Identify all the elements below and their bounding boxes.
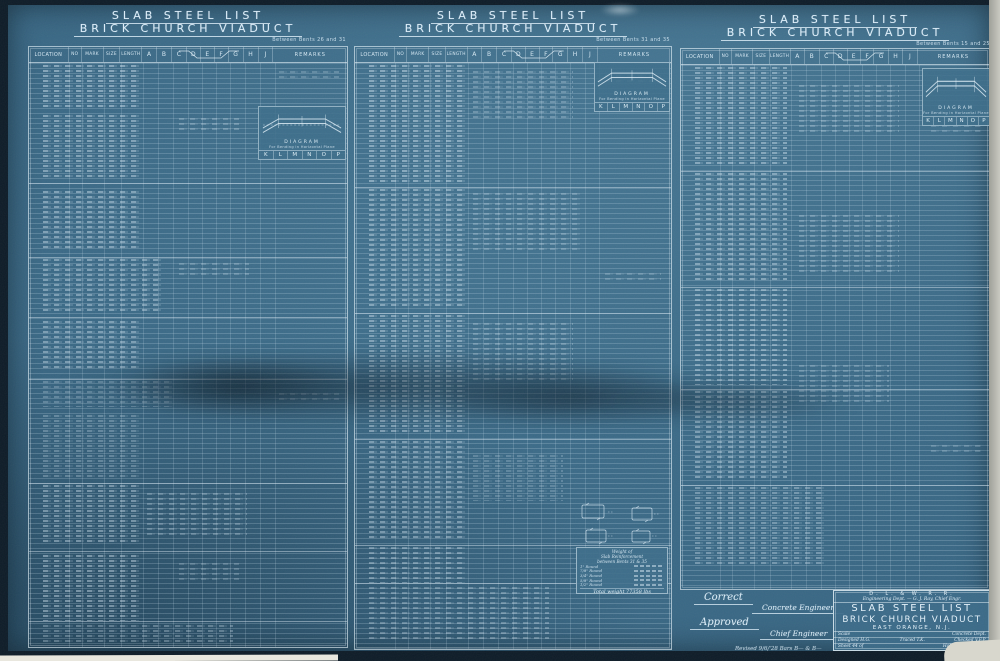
handwritten-entries-texture (369, 65, 465, 183)
column-rule (173, 63, 174, 647)
column-header-length: LENGTH (120, 47, 142, 62)
column-header-h: H (568, 47, 583, 62)
section-rule (29, 257, 347, 258)
panel-middle-subtitle: BRICK CHURCH VIADUCT (373, 22, 653, 35)
column-header-d: D (512, 47, 526, 62)
handwritten-entries-texture (179, 263, 249, 275)
panel-middle-title: SLAB STEEL LIST (403, 9, 623, 22)
dept-label: Concrete Dept. (952, 632, 986, 637)
weight-item-value (634, 579, 664, 581)
panel-left-note: Between Bents 26 and 31 (250, 37, 346, 43)
column-header-j: J (903, 49, 917, 64)
panel-right-subtitle: BRICK CHURCH VIADUCT (695, 26, 975, 39)
handwritten-entries-texture (43, 415, 139, 477)
bend-sketch (259, 107, 345, 140)
panel-middle-note: Between Bents 31 and 35 (590, 37, 670, 43)
column-header-remarks: REMARKS (273, 47, 347, 62)
column-header-location: LOCATION (29, 47, 69, 62)
column-rule (862, 65, 863, 589)
column-header-b: B (805, 49, 819, 64)
column-rule (849, 65, 850, 589)
sheet-title: SLAB STEEL LIST (834, 603, 990, 614)
handwritten-entries-texture (369, 189, 465, 309)
weight-item-list: 1" Round7/8" Round3/4" Round5/8" Round1/… (580, 564, 664, 587)
inset-subcaption: For Bending in Horizontal Plane (923, 111, 989, 115)
column-rule (230, 63, 231, 647)
column-header-mark: MARK (732, 49, 753, 64)
column-rule (202, 63, 203, 647)
section-rule (29, 621, 347, 622)
steel-list-table-right: LOCATIONNOMARKSIZELENGTHABCDEFGHJREMARKS (680, 48, 990, 590)
weight-item-value (634, 565, 664, 567)
handwritten-entries-texture (799, 365, 889, 405)
section-rule (29, 551, 347, 552)
inset-subcaption: For Bending in Horizontal Plane (595, 97, 669, 101)
weight-summary-box: Weight of Slab Reinforcement between Ben… (576, 547, 668, 594)
handwritten-entries-texture (695, 67, 787, 167)
column-rule (905, 65, 906, 589)
stirrup-bend-diagrams (574, 500, 670, 546)
handwritten-entries-texture (931, 125, 981, 133)
scan-edge-bottom-left (0, 655, 338, 661)
inset-letter-row: KLMNOP (595, 102, 669, 111)
column-header-size: SIZE (429, 47, 446, 62)
weight-total: Total weight 77358 lbs (580, 588, 664, 595)
table-header-row: LOCATIONNOMARKSIZELENGTHABCDEFGHJREMARKS (681, 49, 989, 65)
handwritten-entries-texture (279, 393, 339, 401)
column-rule (468, 63, 469, 649)
column-header-no: NO (69, 47, 82, 62)
section-rule (681, 287, 989, 288)
bend-sketch (923, 69, 989, 106)
scale-label: Scale (838, 632, 850, 637)
inset-column-letter: O (317, 151, 332, 159)
column-header-e: E (848, 49, 861, 64)
column-header-e: E (526, 47, 540, 62)
handwritten-entries-texture (473, 455, 563, 501)
inset-column-letter: P (332, 151, 346, 159)
column-header-mark: MARK (82, 47, 104, 62)
revision-note: Revised 9/6/'28 Bars B— & B— (735, 646, 822, 652)
blueprint-scan: SLAB STEEL LIST BRICK CHURCH VIADUCT Bet… (0, 0, 1000, 661)
column-header-a: A (142, 47, 157, 62)
column-header-c: C (172, 47, 187, 62)
column-header-c: C (497, 47, 512, 62)
column-header-f: F (540, 47, 554, 62)
column-header-f: F (861, 49, 874, 64)
inset-column-letter: M (945, 117, 956, 125)
handwritten-entries-texture (473, 71, 573, 121)
section-rule (29, 183, 347, 184)
column-header-remarks: REMARKS (598, 47, 671, 62)
column-header-d: D (187, 47, 201, 62)
handwritten-entries-texture (43, 115, 139, 179)
handwritten-entries-texture (695, 173, 787, 283)
signature-chief-engineer: Chief Engineer (760, 629, 837, 638)
handwritten-entries-texture (43, 485, 139, 543)
section-rule (29, 379, 347, 380)
column-header-j: J (259, 47, 274, 62)
handwritten-entries-texture (369, 547, 465, 583)
table-body (681, 65, 989, 589)
inset-letter-row: KLMNOP (259, 150, 345, 159)
handwritten-entries-texture (179, 118, 239, 132)
column-rule (188, 63, 189, 647)
section-rule (681, 485, 989, 486)
column-header-location: LOCATION (355, 47, 395, 62)
bend-sketch (595, 63, 669, 92)
bending-diagram-inset-right: DIAGRAM For Bending in Horizontal Plane … (922, 68, 990, 126)
handwritten-entries-texture (279, 71, 339, 79)
handwritten-entries-texture (799, 215, 899, 275)
handwritten-entries-texture (695, 487, 825, 567)
inset-column-letter: K (923, 117, 934, 125)
weight-item-row: 1/2" Round (580, 582, 664, 587)
handwritten-entries-texture (43, 191, 139, 251)
inset-column-letter: L (608, 103, 621, 111)
handwritten-entries-texture (147, 493, 247, 537)
section-rule (355, 439, 671, 440)
inset-column-letter: L (934, 117, 945, 125)
handwritten-entries-texture (43, 381, 173, 407)
column-header-size: SIZE (104, 47, 121, 62)
handwritten-entries-texture (369, 315, 465, 435)
weight-item-value (634, 584, 664, 586)
signature-approved-label: Approved (690, 617, 759, 628)
column-header-mark: MARK (407, 47, 429, 62)
inset-column-letter: O (968, 117, 979, 125)
inset-column-letter: N (303, 151, 318, 159)
column-header-j: J (583, 47, 598, 62)
inset-column-letter: P (658, 103, 670, 111)
column-header-b: B (482, 47, 497, 62)
signature-correct-label: Correct (694, 592, 753, 603)
column-header-d: D (834, 49, 847, 64)
inset-subcaption: For Bending in Horizontal Plane (259, 145, 345, 149)
sheet-location: EAST ORANGE, N.J. (834, 625, 990, 632)
column-header-a: A (791, 49, 805, 64)
column-rule (919, 65, 920, 589)
inset-column-letter: M (288, 151, 303, 159)
column-rule (158, 63, 159, 647)
column-header-no: NO (395, 47, 408, 62)
handwritten-entries-texture (695, 391, 787, 481)
inset-column-letter: P (979, 117, 989, 125)
sheet-number: Sheet 44 of (838, 644, 863, 649)
handwritten-entries-texture (473, 193, 583, 253)
column-header-length: LENGTH (446, 47, 468, 62)
section-rule (355, 187, 671, 188)
section-rule (681, 171, 989, 172)
handwritten-entries-texture (369, 587, 549, 641)
column-header-e: E (201, 47, 215, 62)
panel-right-note: Between Bents 15 and 25 (912, 41, 990, 47)
column-header-a: A (468, 47, 483, 62)
column-header-g: G (874, 49, 888, 64)
column-header-location: LOCATION (681, 49, 720, 64)
column-header-g: G (229, 47, 244, 62)
sheet-subtitle: BRICK CHURCH VIADUCT (834, 615, 990, 625)
designed-by: Designed H.G. (838, 638, 870, 643)
handwritten-entries-texture (369, 441, 465, 541)
column-header-h: H (889, 49, 903, 64)
handwritten-entries-texture (179, 563, 239, 583)
handwritten-entries-texture (43, 555, 139, 621)
column-header-f: F (215, 47, 229, 62)
bending-diagram-inset-middle: DIAGRAM For Bending in Horizontal Plane … (594, 62, 670, 112)
column-rule (890, 65, 891, 589)
column-header-no: NO (720, 49, 733, 64)
handwritten-entries-texture (43, 259, 163, 311)
traced-by: Traced T.K. (900, 638, 925, 643)
weight-item-label: 1/2" Round (580, 582, 602, 587)
section-rule (29, 483, 347, 484)
column-header-size: SIZE (753, 49, 769, 64)
column-header-b: B (157, 47, 172, 62)
column-header-g: G (553, 47, 568, 62)
column-rule (835, 65, 836, 589)
panel-left-title: SLAB STEEL LIST (78, 9, 298, 22)
paper-corner-curl (943, 639, 1000, 661)
handwritten-entries-texture (43, 65, 139, 109)
panel-left-subtitle: BRICK CHURCH VIADUCT (48, 22, 328, 35)
handwritten-entries-texture (605, 273, 661, 283)
panel-right-title: SLAB STEEL LIST (725, 13, 945, 26)
inset-letter-row: KLMNOP (923, 116, 989, 125)
column-header-c: C (820, 49, 834, 64)
inset-column-letter: L (274, 151, 289, 159)
table-header-row: LOCATIONNOMARKSIZELENGTHABCDEFGHJREMARKS (29, 47, 347, 63)
inset-column-letter: M (620, 103, 633, 111)
weight-item-value (634, 570, 664, 572)
weight-item-value (634, 575, 664, 577)
column-rule (245, 63, 246, 647)
section-rule (29, 317, 347, 318)
inset-column-letter: K (595, 103, 608, 111)
column-header-length: LENGTH (770, 49, 791, 64)
inset-column-letter: K (259, 151, 274, 159)
column-header-h: H (244, 47, 259, 62)
inset-column-letter: O (645, 103, 658, 111)
handwritten-entries-texture (931, 445, 981, 455)
table-header-row: LOCATIONNOMARKSIZELENGTHABCDEFGHJREMARKS (355, 47, 671, 63)
handwritten-entries-texture (43, 321, 139, 371)
inset-column-letter: N (957, 117, 968, 125)
signature-concrete-engineer: Concrete Engineer (752, 603, 844, 612)
column-header-remarks: REMARKS (918, 49, 989, 64)
bending-diagram-inset-left: DIAGRAM For Bending in Horizontal Plane … (258, 106, 346, 160)
section-rule (355, 313, 671, 314)
scan-edge-right (989, 0, 1000, 661)
column-rule (216, 63, 217, 647)
inset-column-letter: N (633, 103, 646, 111)
column-rule (876, 65, 877, 589)
handwritten-entries-texture (799, 85, 899, 135)
handwritten-entries-texture (43, 625, 233, 645)
column-rule (143, 63, 144, 647)
handwritten-entries-texture (695, 289, 787, 385)
handwritten-entries-texture (473, 323, 573, 383)
